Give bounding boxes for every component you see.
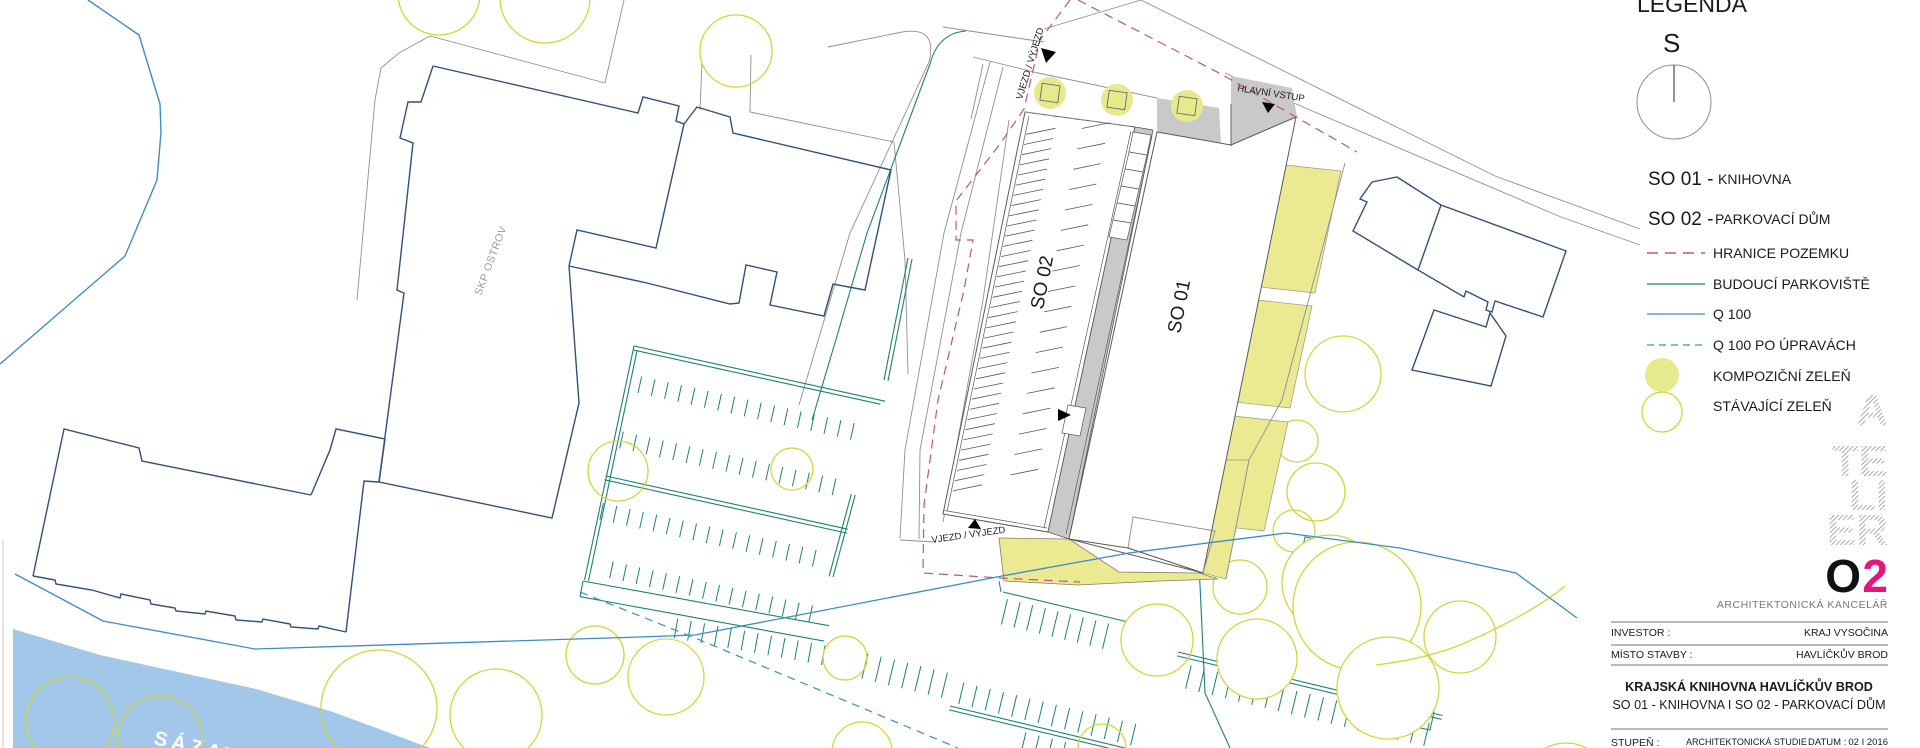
svg-text:STUPEŇ :: STUPEŇ :	[1611, 736, 1659, 748]
svg-text:KRAJSKÁ KNIHOVNA HAVLÍČKŮV B: KRAJSKÁ KNIHOVNA HAVLÍČKŮV BROD	[1625, 678, 1873, 694]
svg-text:STÁVAJÍCÍ ZELEŇ: STÁVAJÍCÍ ZELEŇ	[1713, 398, 1832, 414]
svg-text:BUDOUCÍ PARKOVIŠTĚ: BUDOUCÍ PARKOVIŠTĚ	[1713, 276, 1870, 292]
svg-text:ER: ER	[1827, 506, 1888, 555]
svg-text:KNIHOVNA: KNIHOVNA	[1718, 171, 1792, 187]
svg-text:2: 2	[1862, 550, 1888, 602]
svg-text:LEGENDA: LEGENDA	[1637, 0, 1748, 17]
svg-text:02 I 2016: 02 I 2016	[1848, 737, 1888, 748]
svg-text:ARCHITEKTONICKÁ STUDIE: ARCHITEKTONICKÁ STUDIE	[1686, 737, 1807, 747]
svg-text:KRAJ VYSOČINA: KRAJ VYSOČINA	[1804, 626, 1888, 639]
svg-text:SO 01 - KNIHOVNA I SO 02 -: SO 01 - KNIHOVNA I SO 02 - PARKOVACÍ DŮM	[1612, 697, 1885, 712]
svg-text:Q 100 PO ÚPRAVÁCH: Q 100 PO ÚPRAVÁCH	[1713, 337, 1856, 353]
svg-text:O: O	[1825, 550, 1861, 602]
svg-text:MÍSTO STAVBY :: MÍSTO STAVBY :	[1611, 648, 1693, 661]
svg-text:HRANICE POZEMKU: HRANICE POZEMKU	[1713, 245, 1849, 261]
svg-text:DATUM :: DATUM :	[1808, 737, 1846, 748]
svg-text:ARCHITEKTONICKÁ KANCELÁŘ: ARCHITEKTONICKÁ KANCELÁŘ	[1717, 598, 1888, 611]
svg-text:S: S	[1663, 28, 1680, 58]
svg-text:PARKOVACÍ DŮM: PARKOVACÍ DŮM	[1715, 210, 1830, 227]
svg-text:Q 100: Q 100	[1713, 306, 1751, 322]
svg-text:SO 02 -: SO 02 -	[1648, 209, 1713, 230]
svg-text:HAVLÍČKŮV BROD: HAVLÍČKŮV BROD	[1796, 648, 1888, 661]
svg-text:KOMPOZIČNÍ ZELEŇ: KOMPOZIČNÍ ZELEŇ	[1713, 368, 1851, 384]
svg-text:SO 01 -: SO 01 -	[1648, 169, 1713, 190]
svg-text:A: A	[1856, 386, 1888, 435]
svg-text:INVESTOR :: INVESTOR :	[1611, 627, 1670, 639]
